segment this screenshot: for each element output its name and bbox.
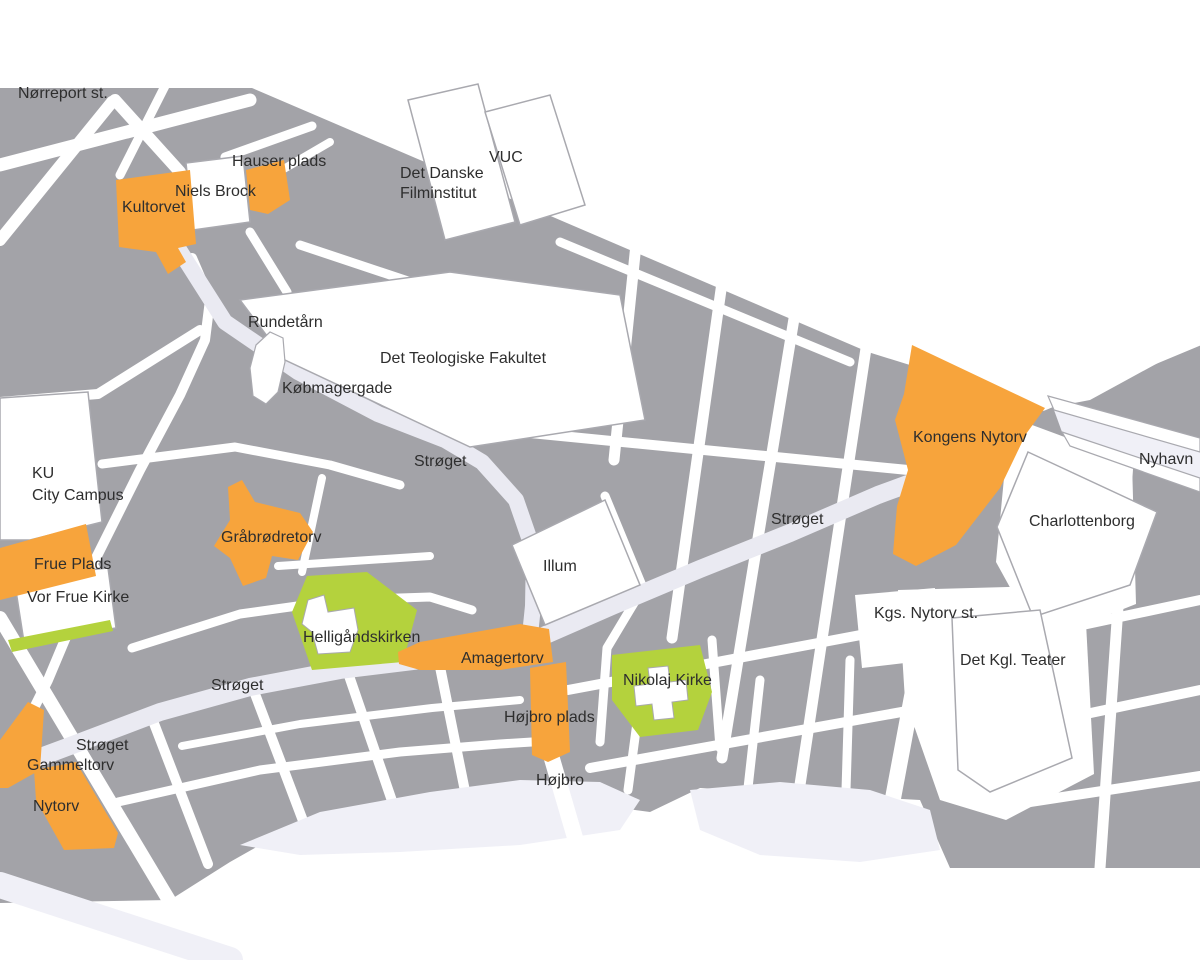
map-label-helligaandskirken: Helligåndskirken [303,628,420,646]
map-label-gammeltorv: Gammeltorv [27,757,114,774]
map-label-frue-plads: Frue Plads [34,556,111,573]
map-label-amagertorv: Amagertorv [461,650,544,667]
map-label-charlottenborg: Charlottenborg [1029,513,1135,530]
map-label-noerreport-st: Nørreport st. [18,85,108,102]
map-label-kgs-nytorv-st: Kgs. Nytorv st. [874,605,978,622]
map-label-hoejbro: Højbro [536,772,584,789]
map-label-illum: Illum [543,558,577,575]
map-label-ku-city-campus-1: KU [32,465,54,482]
map-label-nyhavn: Nyhavn [1139,451,1193,468]
map-stage: Nørreport st.Hauser pladsNiels BrockKult… [0,0,1200,960]
map-label-stroeget-southwest: Strøget [76,737,129,754]
map-label-vuc: VUC [489,149,523,166]
map-label-det-danske-filminstitut-1: Det Danske [400,165,484,182]
map-label-nytorv: Nytorv [33,798,79,815]
map-label-ku-city-campus-2: City Campus [32,487,124,504]
map-label-stroeget-north: Strøget [414,453,467,470]
map-label-graabroedretorv: Gråbrødretorv [221,528,321,546]
map-label-det-kgl-teater: Det Kgl. Teater [960,652,1066,669]
map-label-hoejbro-plads: Højbro plads [504,709,595,726]
map-label-rundetaarn: Rundetårn [248,313,323,331]
map-label-nikolaj-kirke: Nikolaj Kirke [623,672,712,689]
map-label-stroeget-mid: Strøget [211,677,264,694]
map-label-det-danske-filminstitut-2: Filminstitut [400,185,477,202]
map-label-stroeget-east: Strøget [771,511,824,528]
map-label-hauser-plads: Hauser plads [232,153,326,170]
map-canvas: Nørreport st.Hauser pladsNiels BrockKult… [0,0,1200,960]
map-label-det-teologiske-fakultet: Det Teologiske Fakultet [380,350,547,367]
map-label-kultorvet: Kultorvet [122,199,186,216]
map-label-koebmagergade: Købmagergade [282,380,392,397]
map-label-kongens-nytorv: Kongens Nytorv [913,429,1027,446]
map-label-vor-frue-kirke: Vor Frue Kirke [27,589,129,606]
map-label-niels-brock: Niels Brock [175,183,257,200]
